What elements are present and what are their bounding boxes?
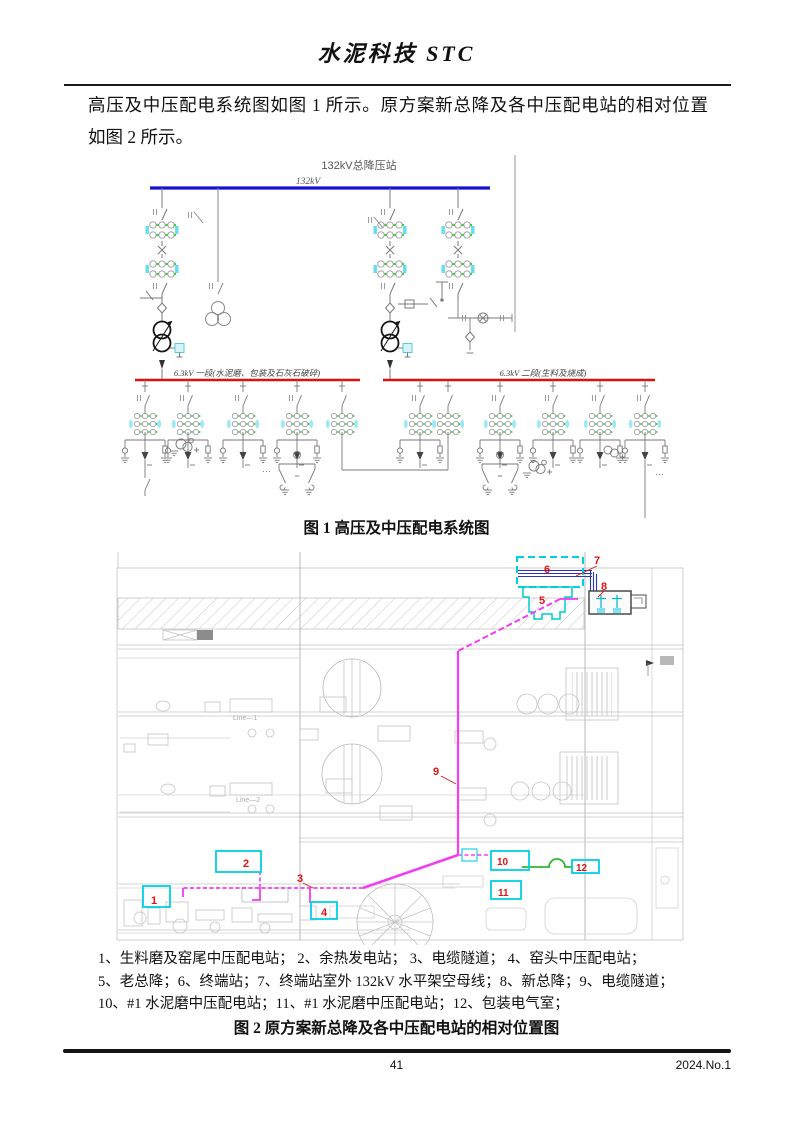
highlight-box-2 xyxy=(216,851,261,872)
marker-8: 8 xyxy=(601,581,607,593)
header-rule xyxy=(64,84,731,86)
journal-page: 水泥科技 STC 高压及中压配电系统图如图 1 所示。原方案新总降及各中压配电站… xyxy=(0,0,793,1122)
marker-2: 2 xyxy=(243,858,249,870)
feeder-symbol xyxy=(164,380,212,468)
feeder-symbol xyxy=(476,380,524,468)
marker-11: 11 xyxy=(498,888,509,899)
ellipsis-mark: ⋯ xyxy=(655,469,664,479)
marker-6: 6 xyxy=(544,564,550,576)
motor-symbol xyxy=(523,460,552,477)
marker-3: 3 xyxy=(297,873,303,885)
figure2-legend: 1、生料磨及窑尾中压配电站； 2、余热发电站； 3、电缆隧道； 4、窑头中压配电… xyxy=(98,948,704,1016)
marker-12: 12 xyxy=(576,863,588,874)
legend-line: 1、生料磨及窑尾中压配电站； 2、余热发电站； 3、电缆隧道； 4、窑头中压配电… xyxy=(98,948,704,971)
footer-page-number: 41 xyxy=(0,1058,793,1072)
pt-branch xyxy=(206,188,231,326)
feeder-symbol xyxy=(146,188,179,300)
main-transformer-1 xyxy=(140,291,184,380)
body-paragraph-line2: 如图 2 所示。 xyxy=(88,127,708,147)
marker-1: 1 xyxy=(151,895,157,907)
mv-bus2-label: 6.3kV 二段(生料及烧成) xyxy=(500,368,587,378)
bus-tie-leg xyxy=(326,380,358,470)
feeder-symbol xyxy=(442,188,475,300)
marker-10: 10 xyxy=(497,857,509,868)
body-paragraph-line1: 高压及中压配电系统图如图 1 所示。原方案新总降及各中压配电站的相对位置 xyxy=(88,95,708,115)
feeder-symbol xyxy=(374,188,407,300)
feeder-symbol xyxy=(273,380,321,468)
feeder-symbol xyxy=(396,380,444,468)
figure1-diagram: 132kV总降压站 132kV xyxy=(96,150,708,524)
plan-line1-label: Line—1 xyxy=(233,715,257,722)
bus-tie-leg xyxy=(432,380,464,470)
figure1-caption: 图 1 高压及中压配电系统图 xyxy=(0,516,793,538)
ellipsis-mark: ⋯ xyxy=(262,466,271,476)
figure1-station-title: 132kV总降压站 xyxy=(321,158,396,172)
mv-bus1-label: 6.3kV 一段(水泥磨、包装及石灰石破碎) xyxy=(174,368,320,378)
feeder-symbol xyxy=(529,380,577,468)
figure2-caption: 图 2 原方案新总降及各中压配电站的相对位置图 xyxy=(0,1016,793,1038)
plan-line2-label: Line—2 xyxy=(236,797,260,804)
legend-line: 5、老总降；6、终端站；7、终端站室外 132kV 水平架空母线；8、新总降；9… xyxy=(98,971,704,994)
feeder-symbol xyxy=(576,380,624,468)
figure1-hv-bus-label: 132kV xyxy=(296,177,321,187)
main-transformer-2 xyxy=(381,282,448,380)
legend-line: 10、#1 水泥磨中压配电站；11、#1 水泥磨中压配电站；12、包装电气室； xyxy=(98,993,704,1016)
marker-7: 7 xyxy=(594,555,600,567)
marker-4: 4 xyxy=(321,907,328,919)
marker-9: 9 xyxy=(433,766,439,778)
feeder-symbol xyxy=(219,380,267,468)
footer-issue-label: 2024.No.1 xyxy=(676,1058,731,1072)
footer-rule xyxy=(63,1049,731,1053)
feeder-tails xyxy=(145,468,645,518)
marker-5: 5 xyxy=(539,595,545,607)
lamp-branch xyxy=(448,300,512,353)
new-substation-structure xyxy=(589,591,646,614)
journal-header-title: 水泥科技 STC xyxy=(0,36,793,68)
figure2-siteplan: Line—1 Line—2 xyxy=(110,548,690,945)
feeder-symbol xyxy=(121,380,169,468)
feeder-symbol xyxy=(621,380,669,468)
motor-symbol xyxy=(170,438,199,455)
